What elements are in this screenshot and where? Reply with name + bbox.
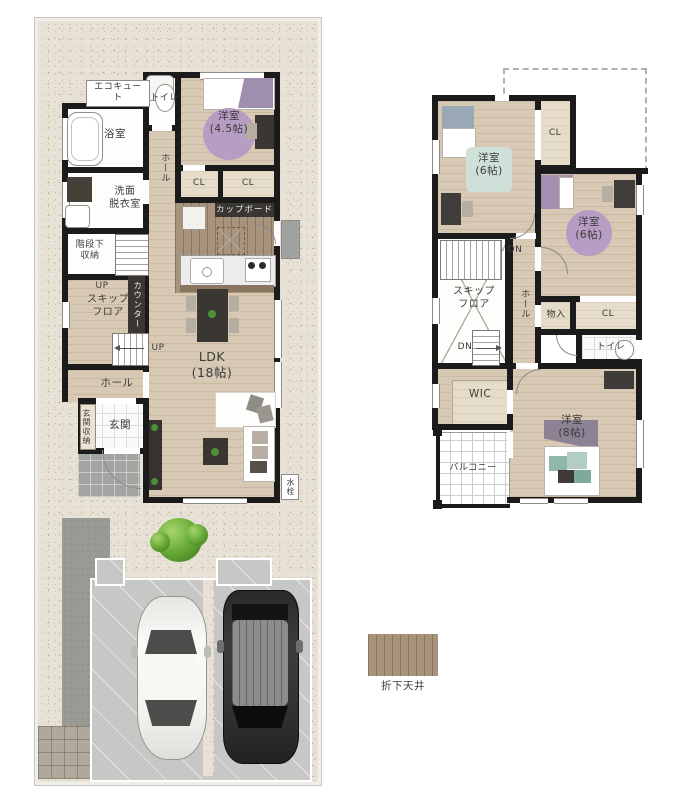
label-cl-b: CL: [237, 178, 259, 189]
label-understair: 階段下 収納: [66, 240, 114, 263]
label-up-b: UP: [146, 343, 170, 354]
label-toilet-2f: トイレ: [592, 342, 630, 353]
label-ecocute: エコキュート: [86, 80, 150, 107]
label-bed6-nw: 洋室 (6帖): [467, 152, 511, 178]
cupboard-label: カップボード: [215, 205, 274, 216]
kitchen-faucet: [202, 267, 212, 277]
pantry-cross: [219, 229, 241, 251]
stove-burner-2: [259, 262, 266, 269]
label-skip-1f: スキップ フロア: [84, 294, 132, 319]
floor-plan-canvas: カップボード カウンター エコキュート トイレ 洋室 (4.5帖) 浴室 ホール…: [0, 0, 682, 808]
label-washroom: 洗面 脱衣室: [103, 186, 147, 211]
label-entrance-storage: 玄関収納: [81, 406, 91, 448]
label-bed6-east: 洋室 (6帖): [567, 216, 611, 242]
label-faucet: 水栓: [281, 474, 299, 500]
label-cl-a: CL: [188, 178, 210, 189]
label-storage-2f: 物入: [541, 310, 571, 321]
label-skip-2f: スキップ フロア: [450, 286, 498, 311]
washing-machine: [67, 177, 92, 202]
label-dn-b: DN: [452, 342, 478, 353]
label-up-a: UP: [90, 281, 114, 292]
bathtub-inner: [71, 117, 99, 161]
label-dn-a: DN: [502, 245, 528, 256]
label-ldk: LDK (18帖): [188, 349, 236, 380]
driveway-tab-right: [216, 558, 272, 586]
label-toilet-1f: トイレ: [149, 93, 180, 104]
driveway-tab-left: [95, 558, 125, 586]
label-hall-mid: ホール: [158, 148, 169, 188]
label-bath: 浴室: [98, 128, 132, 141]
desk-bed8: [604, 371, 634, 389]
label-bed8: 洋室 (8帖): [550, 414, 594, 440]
stairs-2f-upper: [440, 240, 502, 280]
stairs-upper-1f: [115, 234, 149, 276]
label-cl-north: CL: [544, 128, 566, 139]
stove-burner-1: [248, 262, 255, 269]
backdoor-step: [281, 220, 300, 259]
counter-label: カウンター: [131, 280, 142, 330]
door-arc-toilet-2f: [556, 335, 577, 356]
label-wic: WIC: [460, 388, 500, 401]
fridge: [182, 206, 206, 230]
label-entrance: 玄関: [100, 419, 140, 432]
label-hall-2f: ホール: [518, 284, 529, 324]
legend-lowered-ceiling-swatch: [368, 634, 438, 676]
desk-6e: [614, 180, 635, 208]
legend-lowered-ceiling-label: 折下天井: [365, 680, 441, 693]
desk-6nw: [441, 193, 461, 225]
label-balcony: バルコニー: [444, 463, 502, 474]
wash-basin: [65, 205, 90, 228]
label-cl-mid: CL: [595, 309, 621, 320]
desk-45: [255, 115, 274, 149]
label-bed45: 洋室 (4.5帖): [204, 110, 254, 136]
label-hall-south: ホール: [95, 377, 139, 390]
